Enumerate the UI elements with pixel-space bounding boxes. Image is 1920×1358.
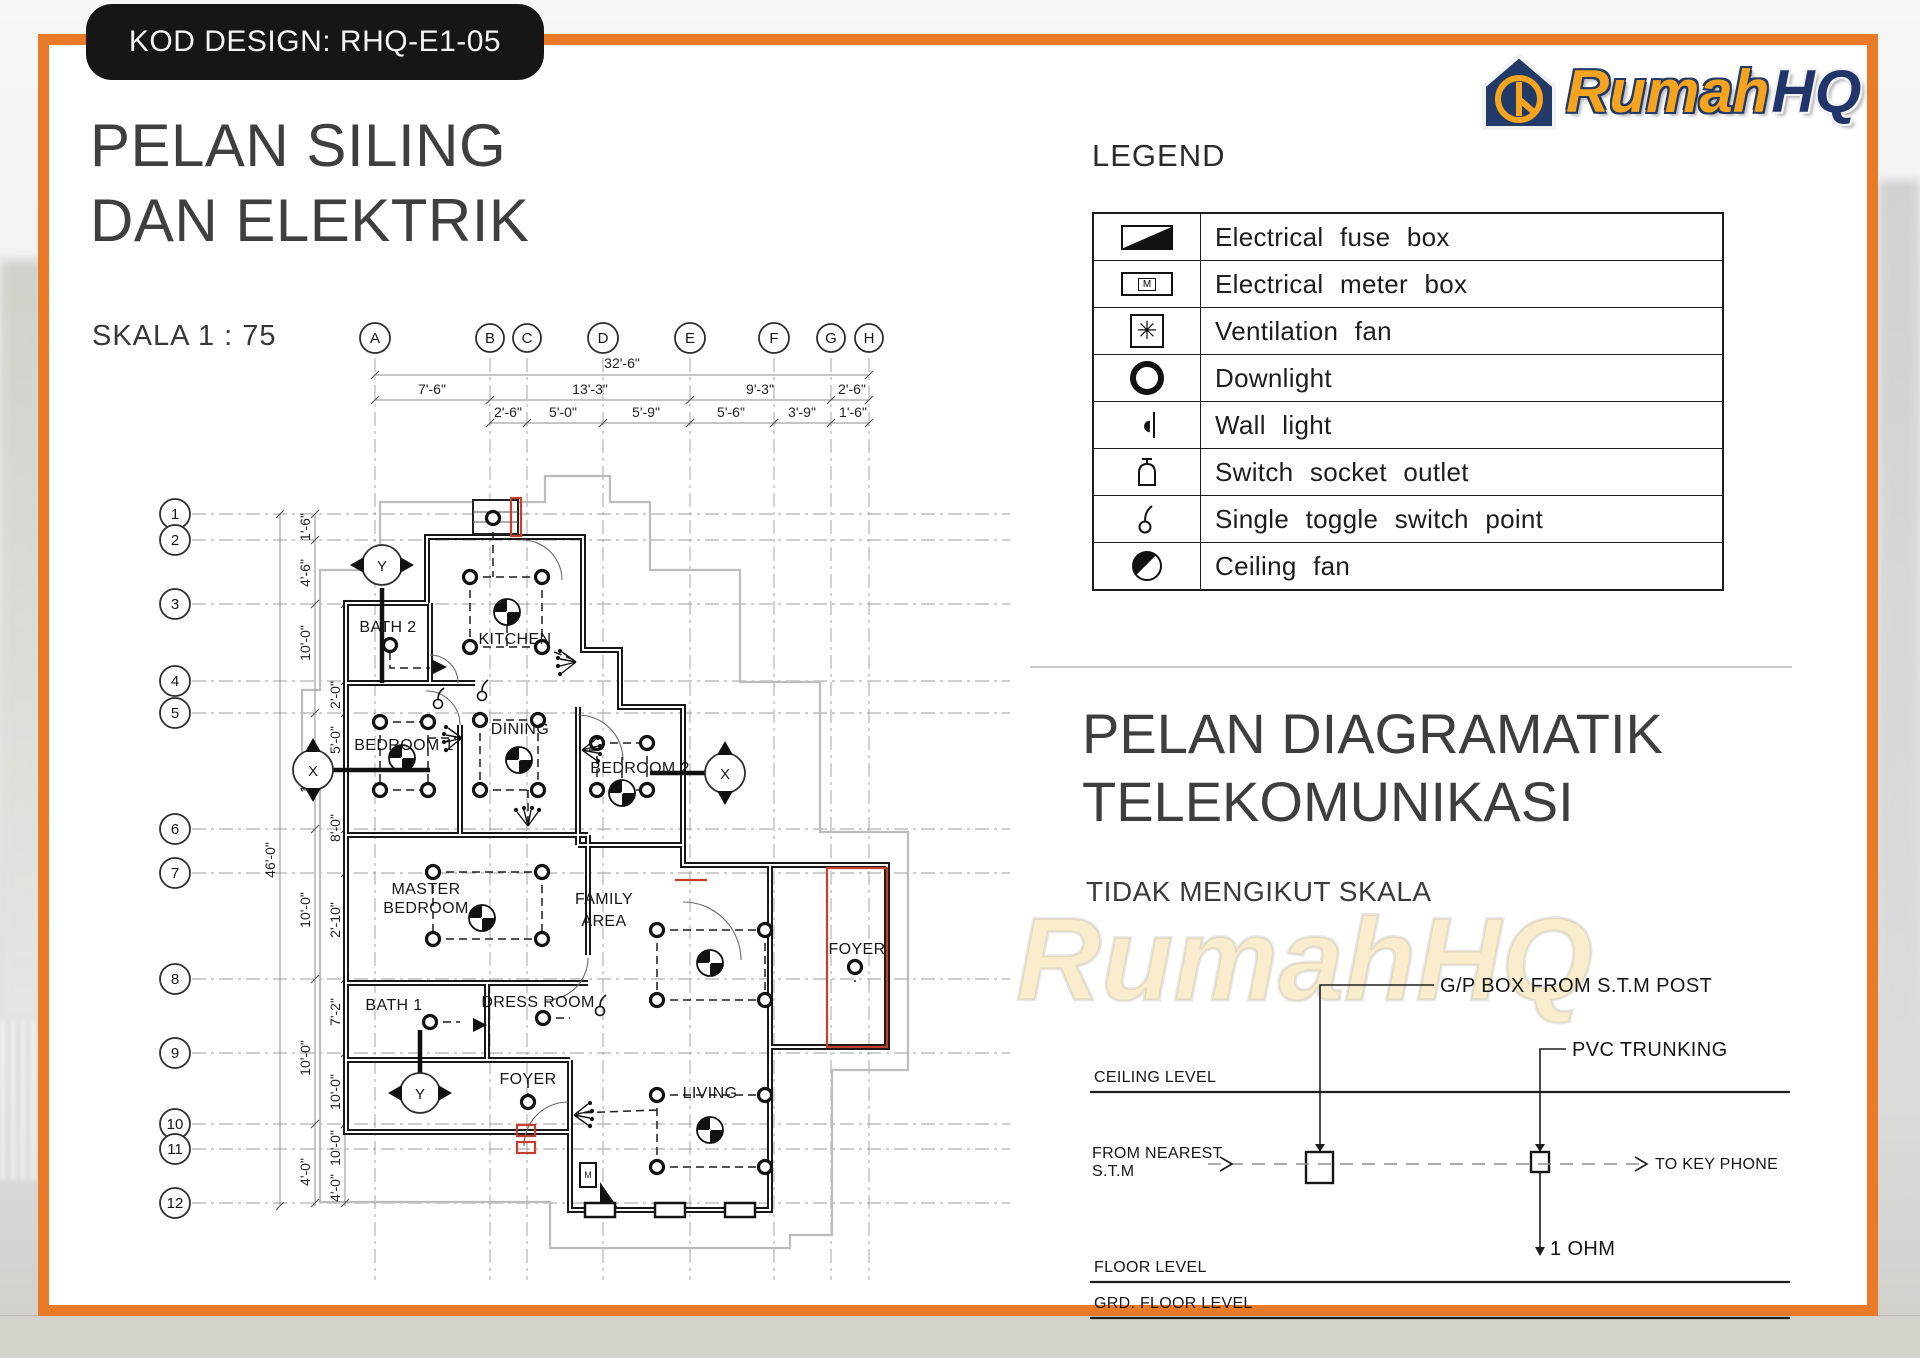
- legend-row-wall-light: ◖ Wall light: [1094, 401, 1722, 448]
- legend-row-toggle-switch: Single toggle switch point: [1094, 495, 1722, 542]
- floor-plan: 32'-6" 7'-6" 13'-3" 9'-3" 2'-6" 2'-6" 5'…: [130, 270, 1060, 1340]
- meter-box-icon: M: [1121, 272, 1173, 296]
- meter-box: M: [580, 1163, 596, 1187]
- room-label-family1: FAMILY: [575, 891, 633, 908]
- svg-text:4'-0": 4'-0": [327, 1174, 343, 1202]
- svg-text:4: 4: [171, 673, 179, 690]
- ceiling-fan-icon: [1132, 551, 1162, 581]
- design-code-label: KOD DESIGN: RHQ-E1-05: [129, 25, 501, 59]
- from-nearest-label2: S.T.M: [1092, 1163, 1134, 1180]
- downlight-icon: [1130, 361, 1164, 395]
- svg-text:B: B: [485, 330, 495, 347]
- page-title: PELAN SILING DAN ELEKTRIK: [90, 108, 529, 258]
- grid-row-bubbles: 1 2 3 4 5 6 7 8 9 10 11 12: [160, 499, 190, 1218]
- svg-text:2'-6": 2'-6": [494, 404, 522, 420]
- gp-box: [1306, 1152, 1333, 1183]
- telecom-title: PELAN DIAGRAMATIK TELEKOMUNIKASI: [1082, 700, 1663, 837]
- svg-text:1: 1: [171, 506, 179, 523]
- svg-text:10'-0": 10'-0": [327, 1130, 343, 1166]
- svg-text:7: 7: [171, 865, 179, 882]
- svg-text:F: F: [769, 330, 778, 347]
- svg-text:D: D: [598, 330, 609, 347]
- svg-text:9'-3": 9'-3": [746, 381, 774, 397]
- switch-socket-icon: [1134, 457, 1160, 487]
- legend-label: Electrical meter box: [1201, 269, 1467, 300]
- svg-text:13'-3": 13'-3": [572, 381, 608, 397]
- svg-text:7'-2": 7'-2": [327, 998, 343, 1026]
- svg-text:1'-6": 1'-6": [839, 404, 867, 420]
- room-label-master2: BEDROOM: [383, 900, 468, 917]
- legend-label: Downlight: [1201, 363, 1332, 394]
- room-label-master1: MASTER: [391, 881, 460, 898]
- grd-floor-level-label: GRD. FLOOR LEVEL: [1094, 1295, 1253, 1312]
- section-divider: [1030, 666, 1792, 668]
- svg-text:C: C: [522, 330, 533, 347]
- porch-columns: [585, 1203, 755, 1217]
- room-label-bedroom1: BEDROOM 1: [354, 737, 454, 754]
- fuse-box-icon: [1121, 225, 1173, 250]
- room-label-dressroom: DRESS ROOM: [481, 994, 594, 1011]
- section-marker-y-top: Y: [350, 545, 414, 683]
- section-marker-y-bottom: Y: [388, 1030, 452, 1113]
- pvc-label: PVC TRUNKING: [1572, 1039, 1728, 1061]
- drawing-sheet: KOD DESIGN: RHQ-E1-05 PELAN SILING DAN E…: [0, 0, 1920, 1358]
- legend-title: LEGEND: [1092, 138, 1225, 174]
- logo-word-rumah: Rumah: [1566, 62, 1769, 122]
- room-label-bath2: BATH 2: [359, 619, 416, 636]
- legend-label: Electrical fuse box: [1201, 222, 1450, 253]
- svg-text:X: X: [720, 766, 730, 783]
- room-label-dining: DINING: [491, 721, 549, 738]
- svg-text:11: 11: [167, 1141, 183, 1158]
- svg-text:1'-6": 1'-6": [297, 513, 313, 541]
- svg-text:3'-9": 3'-9": [788, 404, 816, 420]
- gp-box-label: G/P BOX FROM S.T.M POST: [1440, 975, 1712, 997]
- svg-text:M: M: [584, 1170, 592, 1180]
- room-label-family2: AREA: [581, 913, 626, 930]
- svg-text:4'-0": 4'-0": [297, 1158, 313, 1186]
- svg-text:10'-0": 10'-0": [297, 1040, 313, 1076]
- room-label-bath1: BATH 1: [365, 997, 422, 1014]
- legend-label: Ventilation fan: [1201, 316, 1392, 347]
- telecom-title-line1: PELAN DIAGRAMATIK: [1082, 700, 1663, 768]
- svg-text:8: 8: [171, 971, 179, 988]
- legend-row-fuse-box: Electrical fuse box: [1094, 214, 1722, 260]
- left-dimensions: 46'-0" 1'-6" 4'-6" 10'-0" 10'-0" 10'-0" …: [262, 510, 349, 1210]
- legend-row-downlight: Downlight: [1094, 354, 1722, 401]
- telecom-subtitle: TIDAK MENGIKUT SKALA: [1086, 876, 1432, 908]
- top-dimensions: 32'-6" 7'-6" 13'-3" 9'-3" 2'-6" 2'-6" 5'…: [371, 355, 873, 427]
- svg-text:2: 2: [171, 532, 179, 549]
- ventilation-fan-icon: ✳: [1130, 314, 1164, 348]
- room-label-foyer-right: FOYER: [828, 941, 885, 958]
- legend-label: Switch socket outlet: [1201, 457, 1469, 488]
- svg-text:12: 12: [167, 1195, 184, 1212]
- page-title-line1: PELAN SILING: [90, 108, 529, 183]
- legend-label: Wall light: [1201, 410, 1332, 441]
- svg-text:5'-6": 5'-6": [717, 404, 745, 420]
- svg-text:4'-6": 4'-6": [297, 559, 313, 587]
- pvc-box: [1531, 1152, 1549, 1172]
- svg-text:5'-0": 5'-0": [327, 726, 343, 754]
- svg-text:2'-6": 2'-6": [838, 381, 866, 397]
- telecom-title-line2: TELEKOMUNIKASI: [1082, 768, 1663, 836]
- svg-text:10'-0": 10'-0": [297, 892, 313, 928]
- svg-text:8'-0": 8'-0": [327, 814, 343, 842]
- svg-text:H: H: [864, 330, 875, 347]
- svg-text:5: 5: [171, 705, 179, 722]
- svg-text:2'-10": 2'-10": [327, 902, 343, 938]
- wiring-runs: [380, 532, 855, 1167]
- scale-label: SKALA 1 : 75: [92, 320, 277, 353]
- to-key-phone-label: TO KEY PHONE: [1655, 1156, 1778, 1173]
- svg-text:5'-9": 5'-9": [632, 404, 660, 420]
- svg-text:46'-0": 46'-0": [262, 842, 278, 878]
- svg-text:10: 10: [167, 1116, 184, 1133]
- background-building: [1878, 180, 1920, 1100]
- meter-letter: M: [1138, 278, 1156, 291]
- svg-text:G: G: [825, 330, 837, 347]
- svg-text:9: 9: [171, 1045, 179, 1062]
- room-label-kitchen: KITCHEN: [478, 631, 551, 648]
- svg-text:Y: Y: [377, 558, 387, 575]
- svg-text:X: X: [308, 763, 318, 780]
- logo-word-hq: HQ: [1771, 62, 1861, 122]
- legend-row-switch-socket: Switch socket outlet: [1094, 448, 1722, 495]
- ceiling-level-label: CEILING LEVEL: [1094, 1069, 1216, 1086]
- svg-text:E: E: [685, 330, 695, 347]
- legend-label: Single toggle switch point: [1201, 504, 1543, 535]
- legend-table: Electrical fuse box M Electrical meter b…: [1092, 212, 1724, 591]
- svg-text:32'-6": 32'-6": [604, 355, 640, 371]
- svg-text:7'-6": 7'-6": [418, 381, 446, 397]
- svg-text:6: 6: [171, 821, 179, 838]
- svg-text:3: 3: [171, 596, 179, 613]
- room-label-foyer: FOYER: [499, 1071, 556, 1088]
- svg-text:10'-0": 10'-0": [327, 1074, 343, 1110]
- design-code-badge: KOD DESIGN: RHQ-E1-05: [86, 4, 544, 80]
- house-logo-icon: [1478, 52, 1560, 132]
- legend-label: Ceiling fan: [1201, 551, 1350, 582]
- svg-text:2'-0": 2'-0": [327, 681, 343, 709]
- svg-text:5'-0": 5'-0": [549, 404, 577, 420]
- page-title-line2: DAN ELEKTRIK: [90, 183, 529, 258]
- toggle-switch-icon: [1136, 503, 1158, 535]
- room-label-living: LIVING: [683, 1085, 738, 1102]
- wall-light-icon: ◖: [1139, 412, 1156, 439]
- svg-text:Y: Y: [415, 1086, 425, 1103]
- room-label-bedroom2: BEDROOM 2: [590, 760, 690, 777]
- rumahhq-logo: Rumah HQ: [1478, 52, 1861, 132]
- ohm-label: 1 OHM: [1550, 1238, 1615, 1260]
- floor-level-label: FLOOR LEVEL: [1094, 1259, 1207, 1276]
- from-nearest-label1: FROM NEAREST: [1092, 1145, 1223, 1162]
- svg-text:A: A: [370, 330, 380, 347]
- grid-column-bubbles: A B C D E F G H: [360, 323, 883, 353]
- legend-row-ventilation-fan: ✳ Ventilation fan: [1094, 307, 1722, 354]
- telecom-diagram: G/P BOX FROM S.T.M POST PVC TRUNKING CEI…: [1090, 952, 1800, 1332]
- svg-text:10'-0": 10'-0": [297, 625, 313, 661]
- legend-row-meter-box: M Electrical meter box: [1094, 260, 1722, 307]
- legend-row-ceiling-fan: Ceiling fan: [1094, 542, 1722, 589]
